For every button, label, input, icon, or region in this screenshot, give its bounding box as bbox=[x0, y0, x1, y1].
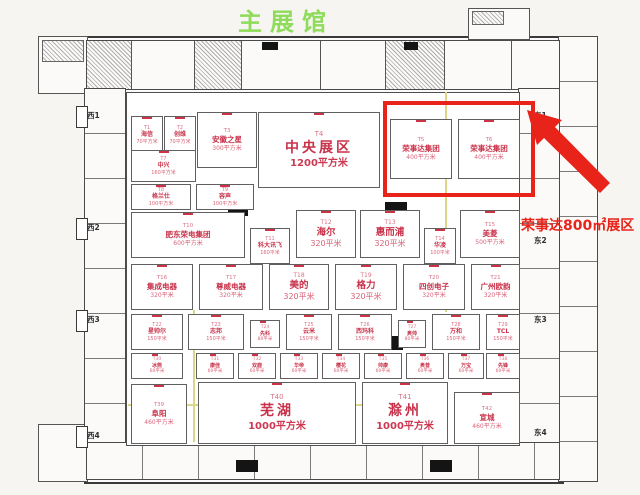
door-label-西4: 西4 bbox=[87, 430, 100, 441]
highlight-box bbox=[383, 101, 535, 197]
arrow-icon bbox=[523, 106, 623, 211]
door-labels-layer: 西1西2西3西4东1东2东3东4 bbox=[0, 0, 640, 495]
door-label-西1: 西1 bbox=[87, 110, 100, 121]
door-label-西2: 西2 bbox=[87, 222, 100, 233]
page-title: 主展馆 bbox=[238, 2, 334, 37]
floorplan-screenshot: T1海信70平方米T2创维70平方米T3安徽之星300平方米T4中央展区1200… bbox=[0, 0, 640, 495]
door-label-东2: 东2 bbox=[534, 235, 547, 246]
door-label-东3: 东3 bbox=[534, 314, 547, 325]
door-label-东4: 东4 bbox=[534, 427, 547, 438]
annotation-label: 荣事达800㎡展区 bbox=[521, 215, 640, 235]
door-label-西3: 西3 bbox=[87, 314, 100, 325]
